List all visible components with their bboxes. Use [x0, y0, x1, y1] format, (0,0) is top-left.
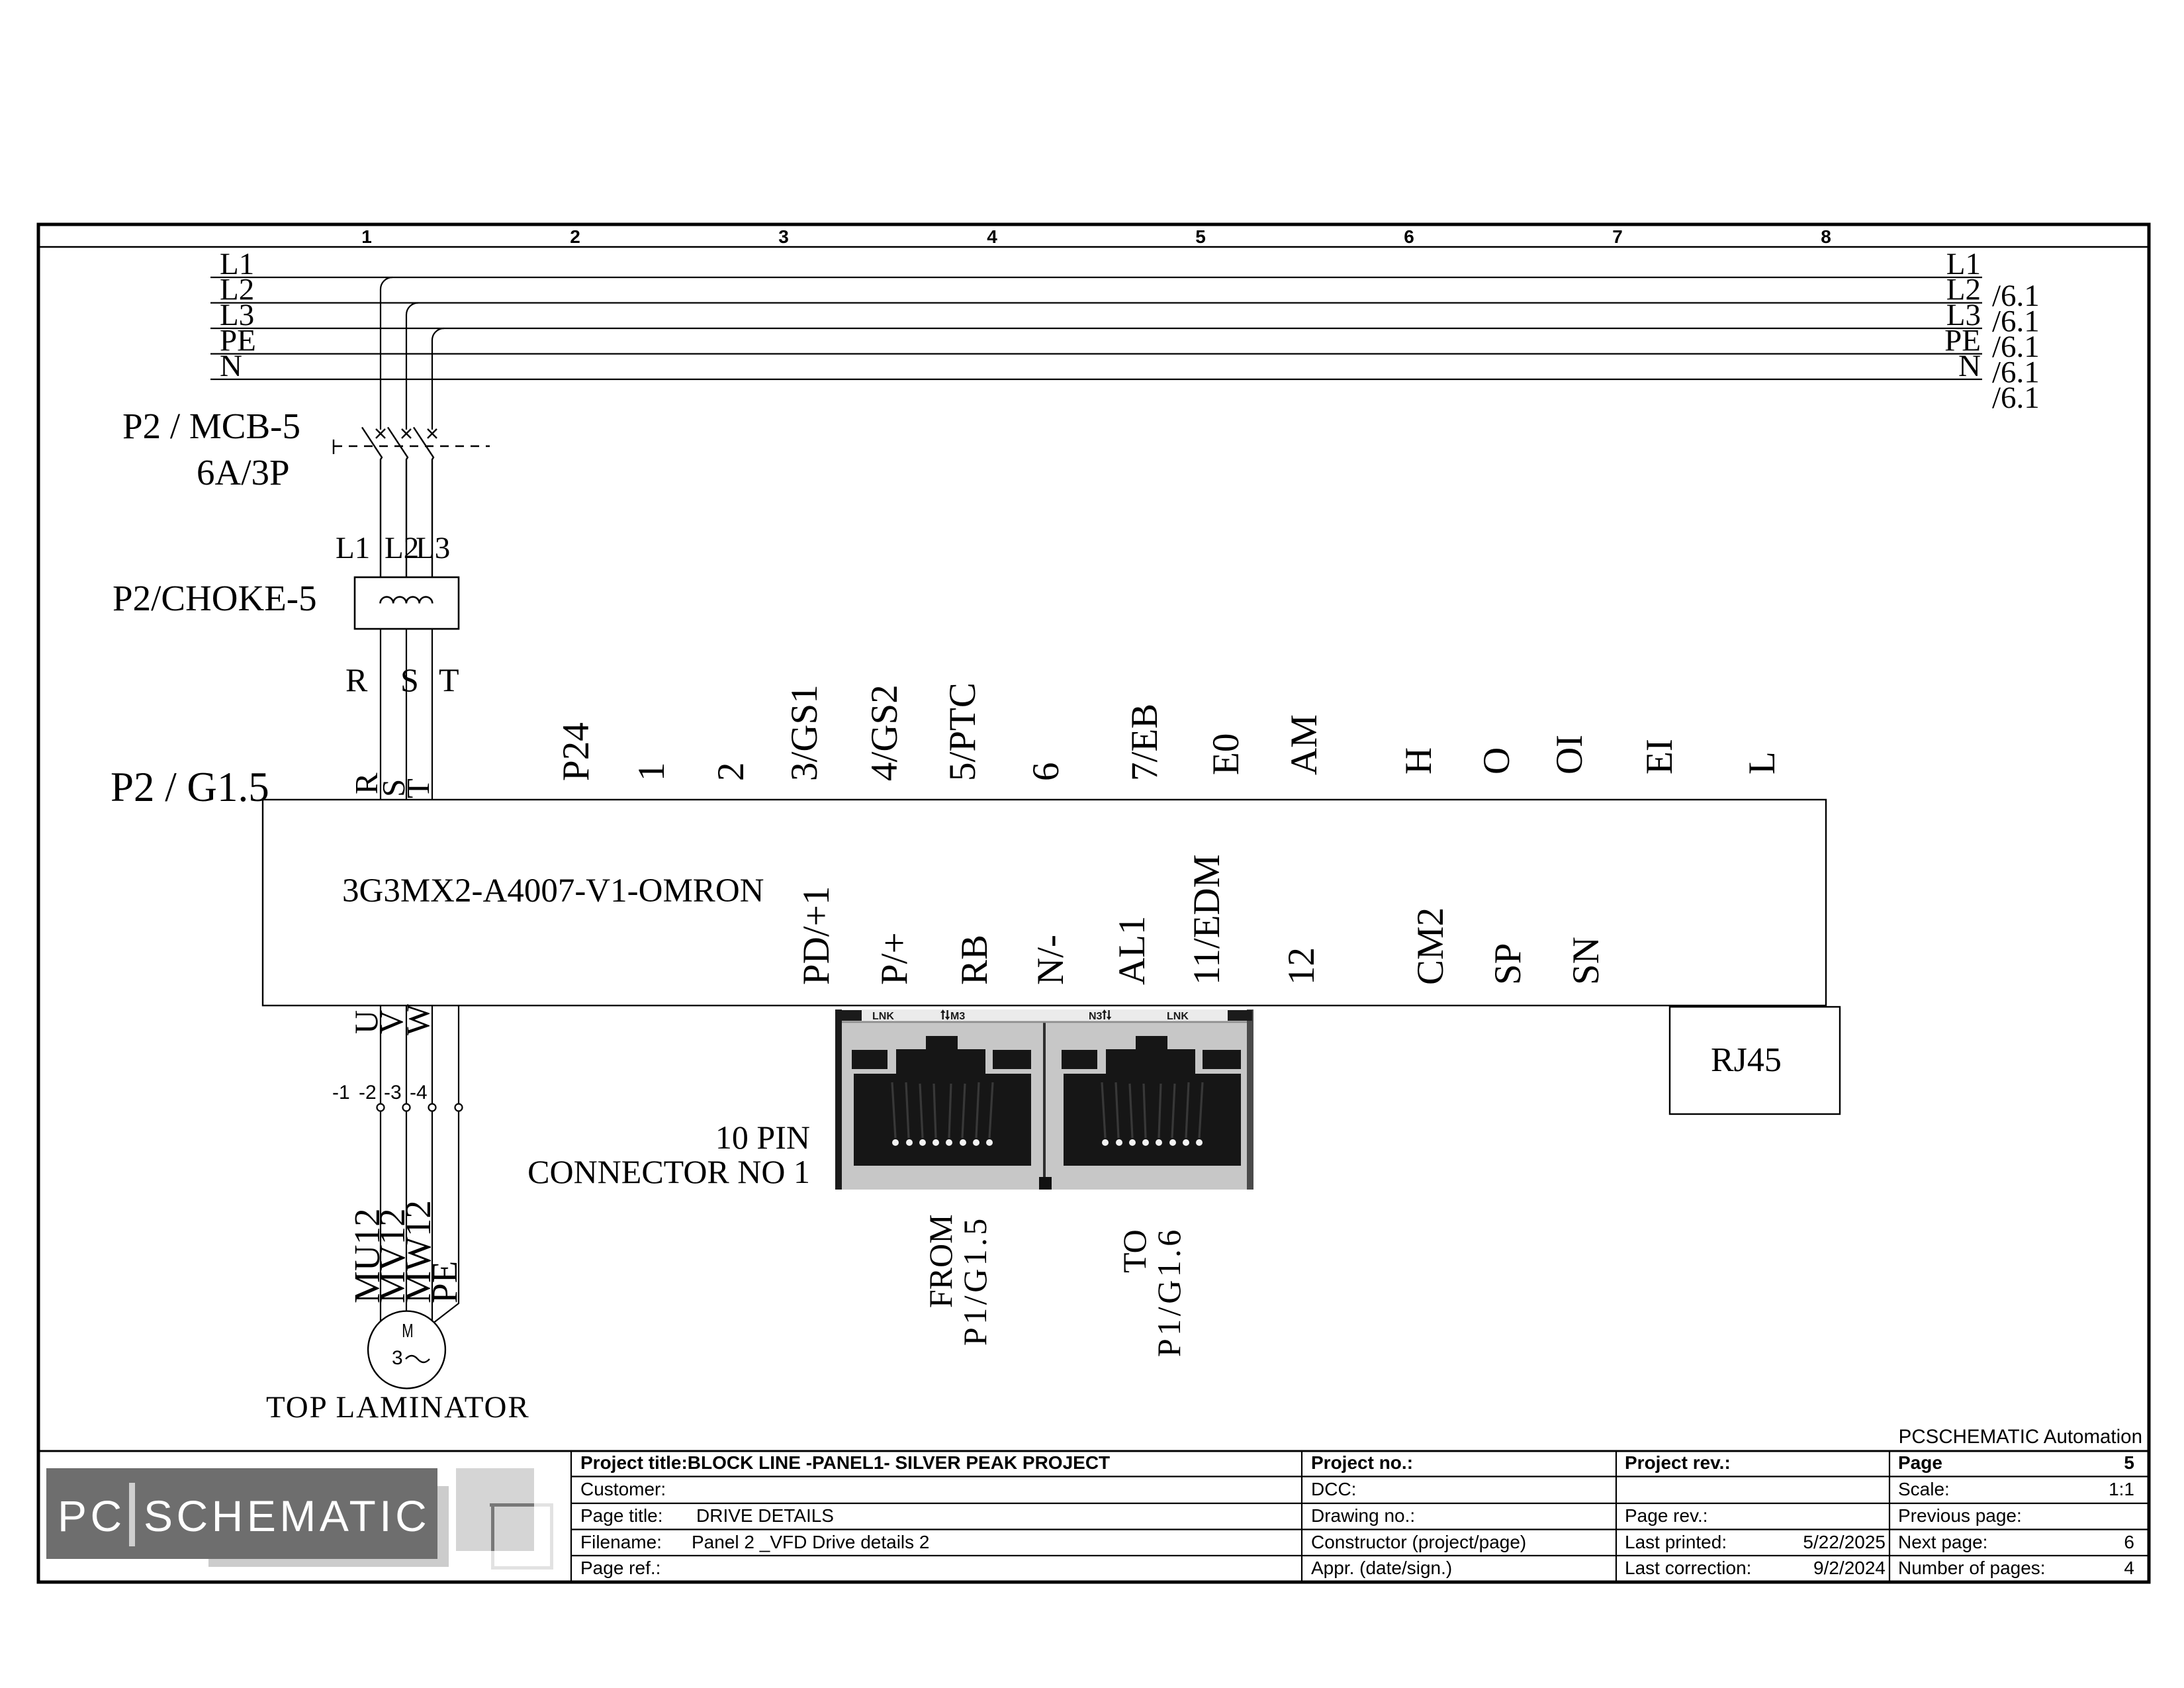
svg-text:Project no.:: Project no.:	[1311, 1452, 1413, 1473]
svg-text:P24: P24	[555, 722, 597, 781]
svg-text:Constructor (project/page): Constructor (project/page)	[1311, 1532, 1526, 1552]
svg-text:2: 2	[710, 763, 752, 782]
svg-text:P2/CHOKE-5: P2/CHOKE-5	[113, 578, 317, 618]
svg-text:RB: RB	[954, 935, 995, 985]
svg-text:7: 7	[1612, 226, 1623, 247]
svg-text:RJ45: RJ45	[1711, 1041, 1782, 1079]
svg-text:N3: N3	[1089, 1011, 1103, 1022]
svg-text:5/22/2025: 5/22/2025	[1803, 1532, 1886, 1552]
svg-text:H: H	[1398, 747, 1439, 774]
svg-text:N: N	[1958, 349, 1981, 383]
svg-text:N/-: N/-	[1030, 935, 1071, 985]
svg-text:L1: L1	[336, 531, 370, 565]
svg-text:W: W	[399, 1004, 436, 1035]
svg-text:P2 / MCB-5: P2 / MCB-5	[122, 406, 300, 446]
svg-text:R: R	[345, 661, 368, 698]
svg-text:L2: L2	[385, 531, 419, 565]
svg-text:6A/3P: 6A/3P	[197, 452, 290, 492]
svg-text:9/2/2024: 9/2/2024	[1813, 1558, 1886, 1578]
svg-text:-1: -1	[332, 1082, 350, 1103]
svg-text:Last printed:: Last printed:	[1625, 1532, 1727, 1552]
svg-text:12: 12	[1281, 947, 1322, 985]
svg-text:1:1: 1:1	[2109, 1479, 2134, 1499]
svg-text:P2 / G1.5: P2 / G1.5	[111, 764, 269, 810]
svg-text:11/EDM: 11/EDM	[1186, 855, 1228, 985]
svg-text:TOP LAMINATOR: TOP LAMINATOR	[266, 1390, 530, 1425]
svg-text:-3: -3	[384, 1082, 402, 1103]
svg-text:PD/+1: PD/+1	[796, 886, 837, 985]
svg-text:-4: -4	[410, 1082, 428, 1103]
svg-text:Page rev.:: Page rev.:	[1625, 1505, 1708, 1526]
svg-text:CM2: CM2	[1410, 908, 1451, 985]
svg-text:5: 5	[2124, 1452, 2134, 1473]
svg-text:LNK: LNK	[1167, 1011, 1189, 1022]
svg-text:T: T	[400, 778, 436, 798]
svg-text:SN: SN	[1565, 937, 1607, 985]
svg-text:1: 1	[631, 763, 672, 782]
svg-text:Number of pages:: Number of pages:	[1898, 1558, 2046, 1578]
svg-text:3/GS1: 3/GS1	[784, 684, 825, 781]
svg-text:LNK: LNK	[872, 1011, 894, 1022]
svg-text:SP: SP	[1487, 943, 1529, 985]
svg-text:P1/G1.6: P1/G1.6	[1150, 1227, 1187, 1357]
svg-text:6: 6	[1404, 226, 1414, 247]
svg-text:/6.1: /6.1	[1992, 381, 2040, 415]
svg-text:4: 4	[2124, 1558, 2134, 1578]
svg-text:3: 3	[392, 1347, 403, 1369]
svg-text:3: 3	[778, 226, 789, 247]
svg-text:7/EB: 7/EB	[1124, 704, 1165, 781]
svg-text:Last correction:: Last correction:	[1625, 1558, 1751, 1578]
svg-text:-2: -2	[359, 1082, 377, 1103]
svg-text:OI: OI	[1549, 735, 1590, 774]
svg-text:Next page:: Next page:	[1898, 1532, 1987, 1552]
svg-text:8: 8	[1821, 226, 1831, 247]
svg-text:3G3MX2-A4007-V1-OMRON: 3G3MX2-A4007-V1-OMRON	[342, 872, 764, 910]
svg-text:6: 6	[2124, 1532, 2134, 1552]
svg-text:P1/G1.5: P1/G1.5	[956, 1215, 993, 1346]
svg-text:TO: TO	[1116, 1229, 1153, 1273]
svg-text:10 PIN: 10 PIN	[715, 1119, 810, 1156]
svg-text:Page: Page	[1898, 1452, 1942, 1473]
svg-text:Project title:BLOCK LINE -PANE: Project title:BLOCK LINE -PANEL1- SILVER…	[580, 1452, 1110, 1473]
svg-text:CONNECTOR NO 1: CONNECTOR NO 1	[527, 1153, 810, 1190]
svg-text:2: 2	[570, 226, 580, 247]
svg-text:4: 4	[987, 226, 997, 247]
svg-text:Page title:: Page title:	[580, 1505, 663, 1526]
svg-text:Filename:: Filename:	[580, 1532, 662, 1552]
svg-text:PE: PE	[424, 1261, 465, 1303]
svg-text:5: 5	[1195, 226, 1206, 247]
svg-text:Previous page:: Previous page:	[1898, 1505, 2022, 1526]
svg-text:Appr. (date/sign.): Appr. (date/sign.)	[1311, 1558, 1452, 1578]
svg-text:N: N	[220, 349, 242, 383]
svg-text:DCC:: DCC:	[1311, 1479, 1356, 1499]
svg-text:M: M	[402, 1321, 413, 1342]
svg-text:P/+: P/+	[874, 932, 915, 985]
svg-text:E0: E0	[1205, 733, 1247, 775]
svg-text:PC: PC	[58, 1491, 126, 1540]
svg-text:L3: L3	[416, 531, 450, 565]
svg-text:Customer:: Customer:	[580, 1479, 666, 1499]
svg-text:AM: AM	[1283, 714, 1325, 775]
svg-text:Scale:: Scale:	[1898, 1479, 1950, 1499]
svg-text:SCHEMATIC: SCHEMATIC	[144, 1491, 430, 1540]
svg-text:4/GS2: 4/GS2	[864, 684, 905, 781]
svg-text:S: S	[400, 661, 419, 698]
svg-text:1: 1	[361, 226, 372, 247]
svg-text:Drawing no.:: Drawing no.:	[1311, 1505, 1415, 1526]
svg-text:DRIVE DETAILS: DRIVE DETAILS	[696, 1505, 834, 1526]
svg-text:AL1: AL1	[1111, 916, 1153, 985]
svg-text:5/PTC: 5/PTC	[942, 682, 983, 781]
svg-text:Page ref.:: Page ref.:	[580, 1558, 660, 1578]
svg-text:EI: EI	[1639, 739, 1680, 774]
svg-text:T: T	[439, 661, 459, 698]
svg-text:O: O	[1476, 747, 1518, 774]
svg-text:PCSCHEMATIC Automation: PCSCHEMATIC Automation	[1899, 1426, 2142, 1448]
svg-text:Project rev.:: Project rev.:	[1625, 1452, 1731, 1473]
svg-text:6: 6	[1025, 763, 1067, 782]
svg-text:L: L	[1741, 751, 1783, 774]
svg-text:FROM: FROM	[922, 1214, 959, 1308]
svg-text:Panel 2 _VFD Drive details 2: Panel 2 _VFD Drive details 2	[692, 1532, 930, 1552]
svg-text:M3: M3	[950, 1011, 965, 1022]
